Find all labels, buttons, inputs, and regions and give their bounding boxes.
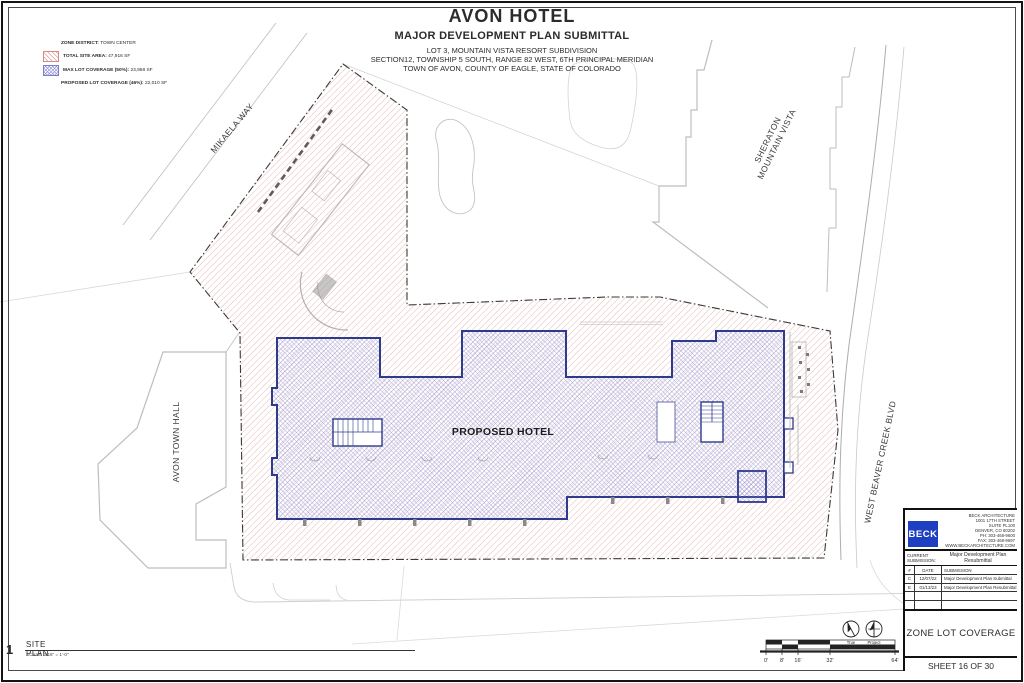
coverage-legend: ZONE DISTRICT: TOWN CENTER TOTAL SITE AR… (43, 39, 167, 92)
red-hatch-swatch (43, 51, 59, 62)
firm-address: BECK ARCHITECTURE 1001 17TH STREET SUITE… (945, 513, 1015, 548)
label-avon-town-hall: AVON TOWN HALL (171, 402, 181, 483)
scale-tick-4: 64' (891, 658, 898, 664)
legal-line-3: TOWN OF AVON, COUNTY OF EAGLE, STATE OF … (252, 64, 772, 73)
project-subtitle: MAJOR DEVELOPMENT PLAN SUBMITTAL (252, 30, 772, 42)
legend-proposed-lot-coverage: PROPOSED LOT COVERAGE (46%): 22,010 SF (43, 80, 167, 89)
scale-tick-3: 32' (826, 658, 833, 664)
hotel-se-projection (738, 471, 766, 502)
east-bump-1 (784, 418, 793, 429)
sheet-title: ZONE LOT COVERAGE (905, 609, 1017, 658)
svg-text:North: North (846, 645, 857, 650)
legend-zone-district: ZONE DISTRICT: TOWN CENTER (43, 39, 167, 48)
avon-town-hall-outline (98, 352, 226, 568)
site-plan-drawing: 0' 8' 16' 32' 64' True North Project Nor… (0, 0, 1024, 683)
table-row-empty (905, 592, 1017, 601)
submissions-table: # DATE SUBMISSION C 12/07/22 Major Devel… (905, 566, 1017, 609)
title-block: BECK BECK ARCHITECTURE 1001 17TH STREET … (903, 508, 1017, 671)
current-submission-label: CURRENT SUBMISSION: (905, 551, 939, 565)
project-north-icon (868, 621, 880, 637)
firm-section: BECK BECK ARCHITECTURE 1001 17TH STREET … (905, 510, 1017, 551)
legend-total-site-area: TOTAL SITE AREA: 47,916 SF (43, 51, 167, 62)
legend-max-lot-coverage: MAX LOT COVERAGE (50%): 23,958 SF (43, 65, 167, 76)
legal-line-1: LOT 3, MOUNTAIN VISTA RESORT SUBDIVISION (252, 46, 772, 55)
current-submission-value: Major Development Plan Resubmittal (939, 551, 1017, 565)
title-rule (25, 650, 415, 651)
svg-text:North: North (869, 645, 880, 650)
drawing-number: 1 (6, 642, 13, 657)
table-row: C 12/07/22 Major Development Plan Submit… (905, 575, 1017, 584)
legal-line-2: SECTION12, TOWNSHIP 5 SOUTH, RANGE 82 WE… (252, 55, 772, 64)
drawing-scale: SCALE: 1/16" = 1'-0" (26, 652, 69, 657)
scale-tick-0: 0' (764, 658, 768, 664)
label-proposed-hotel: PROPOSED HOTEL (452, 426, 554, 438)
beck-logo: BECK (908, 521, 938, 547)
table-header-row: # DATE SUBMISSION (905, 566, 1017, 575)
scale-tick-2: 16' (794, 658, 801, 664)
table-row: E 01/13/23 Major Development Plan Resubm… (905, 584, 1017, 593)
pond-outline (436, 119, 475, 213)
table-row-empty (905, 601, 1017, 610)
sheet-number: SHEET 16 OF 30 (905, 658, 1017, 673)
scale-tick-1: 8' (780, 658, 784, 664)
current-submission-row: CURRENT SUBMISSION: Major Development Pl… (905, 551, 1017, 566)
east-bump-2 (784, 462, 793, 473)
sheet-header: AVON HOTEL MAJOR DEVELOPMENT PLAN SUBMIT… (252, 6, 772, 73)
sheet-page: 0' 8' 16' 32' 64' True North Project Nor… (0, 0, 1024, 683)
project-title: AVON HOTEL (252, 6, 772, 27)
blue-hatch-swatch (43, 65, 59, 76)
